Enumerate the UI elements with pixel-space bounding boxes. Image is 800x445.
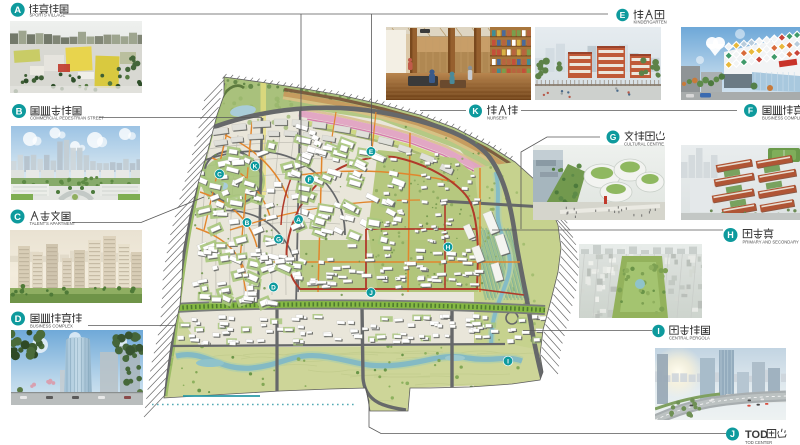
svg-text:K: K [253, 163, 258, 170]
svg-text:I: I [507, 358, 509, 365]
svg-text:I: I [657, 326, 659, 336]
svg-text:H: H [446, 244, 451, 251]
svg-text:F: F [308, 177, 312, 184]
svg-text:TOD CENTER: TOD CENTER [745, 440, 772, 445]
svg-text:D: D [15, 314, 22, 325]
svg-text:J: J [369, 290, 373, 297]
svg-text:BUSINESS COMPLEX: BUSINESS COMPLEX [30, 324, 73, 329]
svg-text:C: C [217, 171, 222, 178]
svg-text:BUSINESS COMPLEX: BUSINESS COMPLEX [762, 116, 800, 121]
svg-text:TALENT'S APARTMENT: TALENT'S APARTMENT [30, 221, 76, 226]
svg-text:G: G [610, 132, 617, 142]
svg-text:A: A [14, 5, 21, 16]
svg-text:B: B [245, 220, 250, 227]
svg-text:E: E [369, 149, 374, 156]
svg-text:B: B [16, 106, 23, 117]
svg-text:E: E [620, 10, 626, 20]
svg-text:D: D [271, 284, 276, 291]
svg-text:KINDERGARTEN: KINDERGARTEN [634, 20, 667, 25]
svg-text:CENTRAL PERGOLA: CENTRAL PERGOLA [669, 336, 710, 341]
svg-text:H: H [727, 230, 734, 240]
svg-text:CULTURAL CENTRE: CULTURAL CENTRE [624, 142, 664, 147]
svg-text:SPORTS VILLAGE: SPORTS VILLAGE [30, 12, 66, 17]
svg-text:COMMERCIAL PEDESTRIAN STREET: COMMERCIAL PEDESTRIAN STREET [30, 116, 104, 121]
svg-text:K: K [472, 106, 479, 116]
svg-text:J: J [730, 429, 735, 439]
svg-text:C: C [14, 212, 21, 223]
svg-text:A: A [296, 217, 301, 224]
svg-text:NURSERY: NURSERY [487, 116, 508, 121]
svg-text:PRIMARY AND SECONDARY SCH: PRIMARY AND SECONDARY SCH [743, 240, 800, 245]
svg-text:G: G [276, 236, 281, 243]
svg-text:F: F [748, 106, 753, 116]
